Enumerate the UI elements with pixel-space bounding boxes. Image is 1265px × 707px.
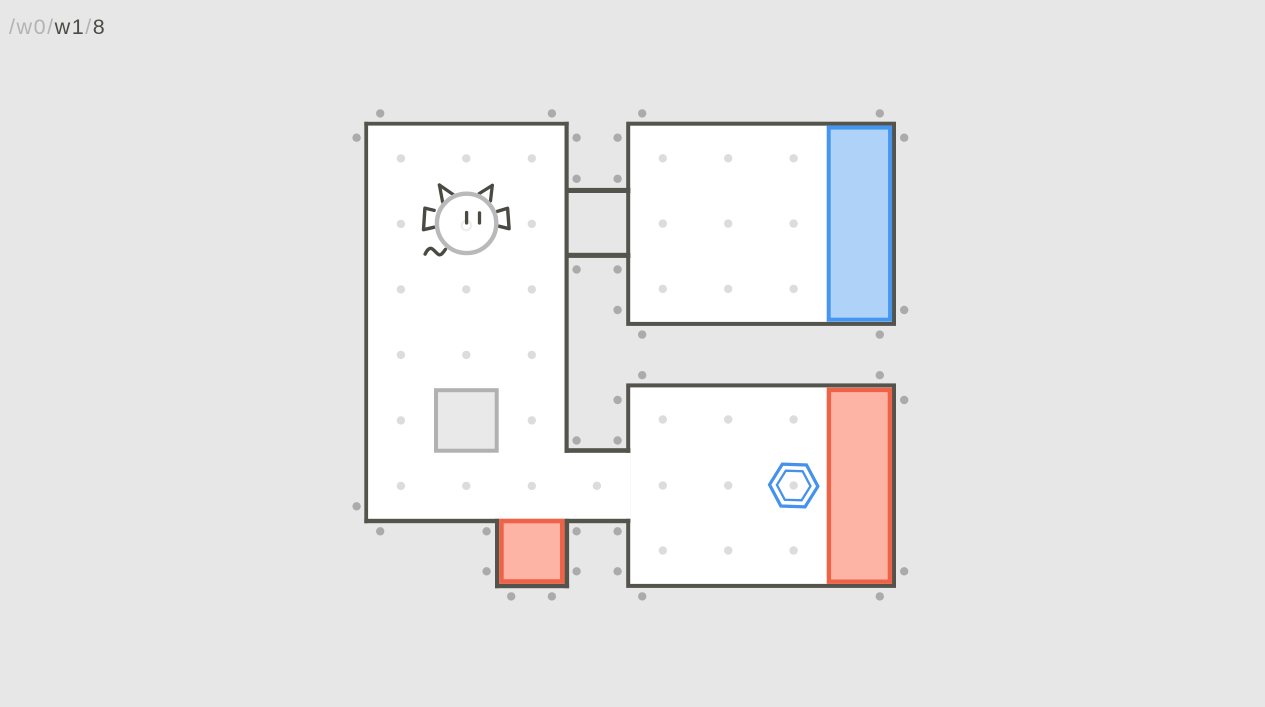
svg-text:/w0/w1/8: /w0/w1/8	[9, 15, 106, 39]
